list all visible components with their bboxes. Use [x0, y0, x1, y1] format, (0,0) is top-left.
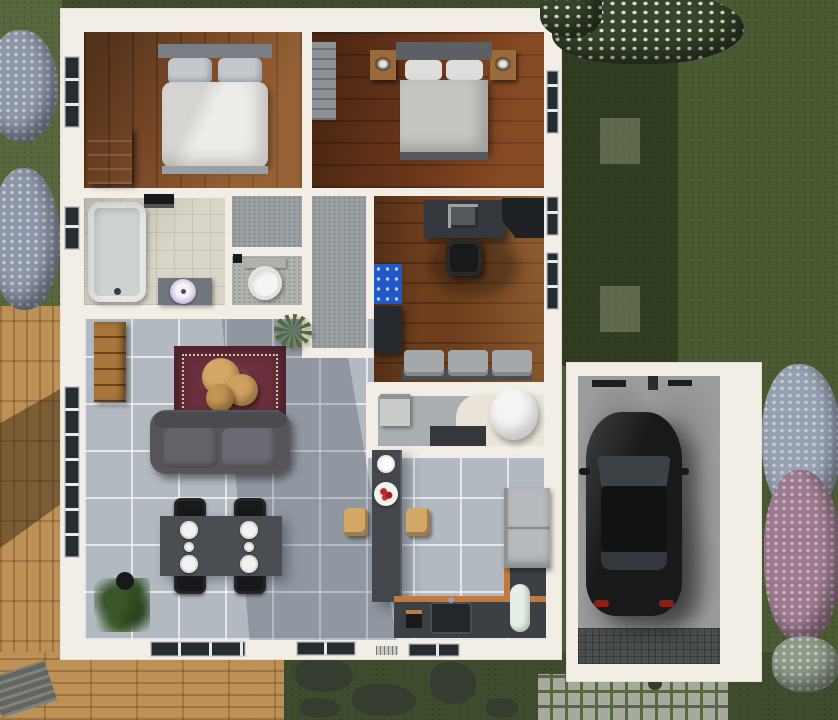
kitchen-sink	[430, 602, 472, 634]
stepping-stone	[295, 658, 353, 692]
bench-seats	[402, 350, 532, 382]
car-rear-window	[601, 552, 667, 570]
black-car	[586, 412, 682, 616]
bench-cushion	[448, 350, 488, 376]
nightstand	[490, 50, 516, 80]
car-roof	[601, 486, 667, 552]
printer	[448, 204, 478, 228]
duvet	[162, 82, 268, 168]
bookshelf	[94, 322, 126, 402]
potted-plant-small	[274, 314, 312, 348]
bar-stool	[344, 508, 368, 536]
dining-table	[160, 516, 282, 576]
white-bowl	[377, 455, 395, 473]
wall	[302, 348, 374, 358]
coffee-maker	[406, 610, 422, 628]
plate	[180, 521, 198, 539]
wall-tool	[592, 380, 626, 387]
wardrobe	[312, 42, 336, 120]
faucet	[448, 597, 454, 603]
faucet	[181, 289, 186, 294]
nightstand-plant	[375, 57, 391, 71]
car-taillight	[659, 600, 674, 607]
refrigerator	[504, 488, 550, 568]
floorplan-scene	[0, 0, 838, 720]
sofa-cushion	[164, 428, 218, 468]
bathroom-window	[64, 206, 80, 250]
bar-stool	[406, 508, 430, 536]
living-glass-door	[64, 386, 80, 558]
living-window-bottom-1	[150, 641, 246, 657]
car-taillight	[594, 600, 609, 607]
shower-glass-screen	[232, 247, 302, 250]
nightstand-plant	[495, 57, 511, 71]
living-window-bottom-2	[296, 641, 356, 656]
kitchen-window-bottom	[408, 643, 460, 657]
stepping-stone	[352, 684, 416, 716]
duvet	[400, 80, 488, 152]
stepping-stone	[430, 662, 476, 704]
bathtub-drain	[114, 288, 121, 295]
car-mirror	[579, 468, 590, 475]
pillow	[446, 60, 483, 80]
potted-plant-large	[94, 578, 150, 632]
utility-counter	[430, 426, 486, 446]
bed-frame-foot	[162, 166, 268, 174]
bush-corner	[772, 636, 838, 692]
plate-small	[184, 542, 194, 552]
headboard	[158, 44, 272, 58]
sofa-cushion	[222, 428, 276, 468]
stepping-stone	[300, 698, 340, 718]
car-windshield	[597, 456, 671, 486]
nightstand	[370, 50, 396, 80]
sofa-back	[154, 412, 286, 428]
bed-double-white	[162, 44, 268, 174]
plate	[240, 555, 258, 573]
wall-tool	[668, 380, 692, 386]
bedroom-left-window	[64, 56, 80, 128]
office-chair	[446, 240, 482, 276]
plate	[180, 555, 198, 573]
bed-double-gray	[400, 42, 488, 160]
stepping-stone	[486, 698, 518, 718]
bedroom-right-window	[546, 70, 559, 134]
bed-frame-foot	[400, 152, 488, 160]
plate-small	[244, 542, 254, 552]
sofa	[150, 410, 290, 474]
vent-grille	[376, 646, 398, 655]
towel-rack	[144, 194, 174, 208]
toilet-bowl	[248, 266, 282, 300]
bathtub	[88, 202, 146, 302]
garage-mat	[578, 628, 720, 664]
washing-machine	[380, 394, 410, 426]
side-table	[374, 306, 402, 354]
pillow	[168, 58, 212, 84]
plate	[240, 521, 258, 539]
dishwasher-door	[510, 584, 530, 632]
vanity	[158, 278, 212, 305]
fruit-plate	[374, 482, 398, 506]
wall	[366, 382, 378, 458]
coffee-table	[206, 384, 234, 412]
dresser	[88, 128, 132, 184]
car-mirror	[678, 468, 689, 475]
shower-door-handle	[233, 254, 242, 263]
bush-pink	[764, 470, 838, 642]
wall-tool	[648, 376, 658, 390]
headboard	[396, 42, 492, 60]
pillow	[405, 60, 442, 80]
office-window-lower	[546, 252, 559, 310]
pillow	[218, 58, 262, 84]
hallway-floor	[312, 196, 366, 348]
bench-cushion	[492, 350, 532, 376]
bench-cushion	[404, 350, 444, 376]
tool-board	[374, 264, 402, 304]
plant-pot	[116, 572, 134, 590]
office-window-upper	[546, 196, 559, 236]
shower-floor	[232, 196, 302, 250]
